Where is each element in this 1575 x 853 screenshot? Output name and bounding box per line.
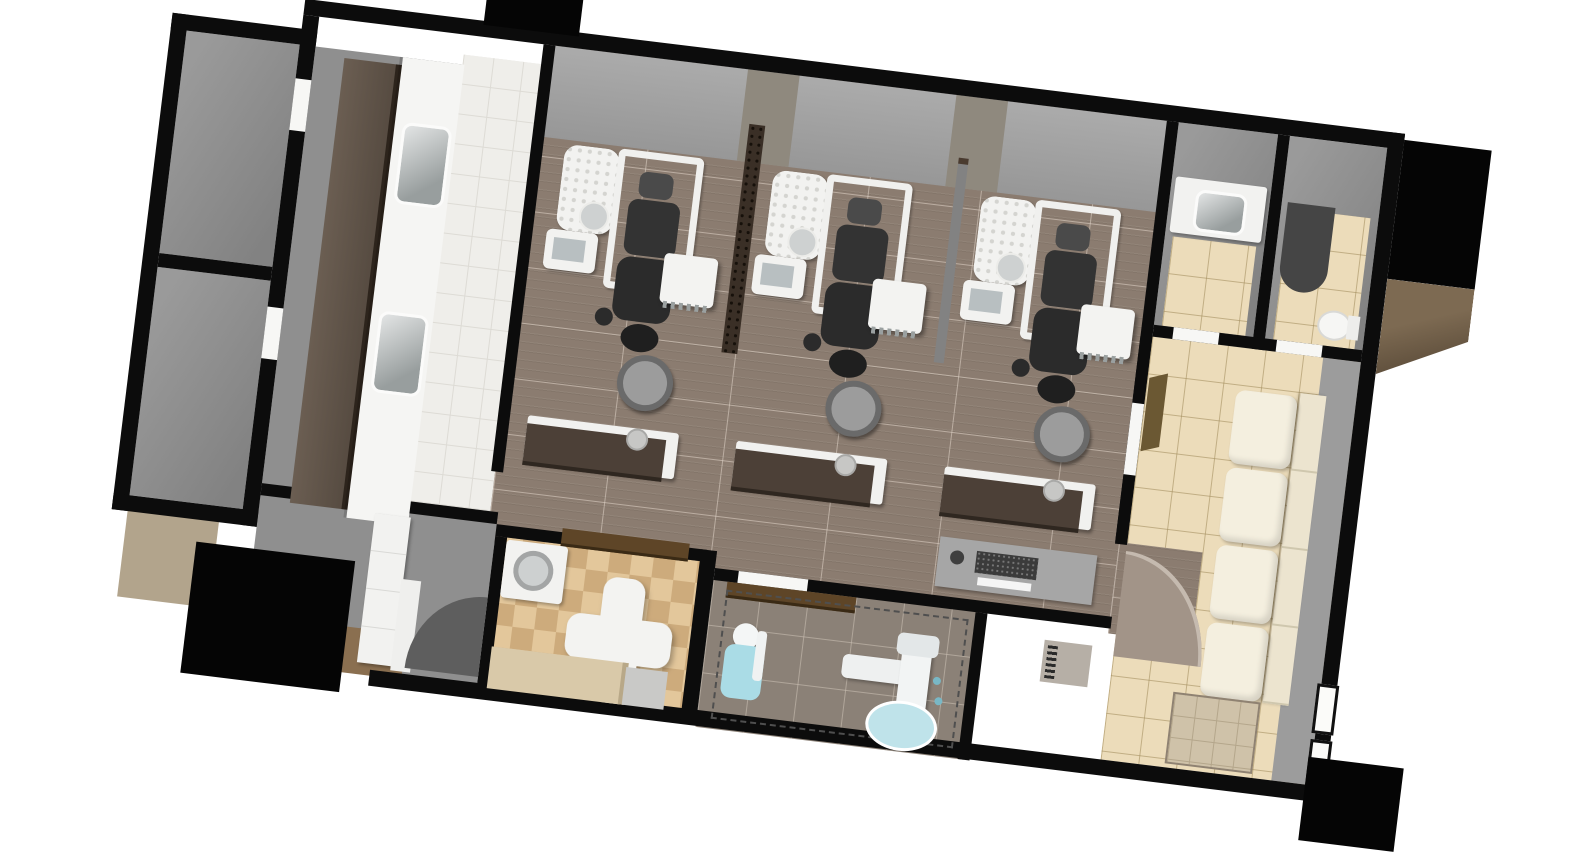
- vanity-sink: [1192, 189, 1249, 237]
- xray-arm: [841, 653, 907, 685]
- cuspidor-bowl: [994, 251, 1027, 284]
- assistant-cart: [659, 253, 719, 309]
- bathroom-vanity: [1169, 176, 1267, 243]
- assistant-cart: [867, 278, 927, 334]
- dental-chair-backrest: [831, 223, 889, 285]
- dental-chair-base: [619, 322, 660, 354]
- entry-doormat: [1167, 694, 1259, 772]
- toilet-tank: [1346, 315, 1361, 340]
- monitor-screen: [760, 263, 794, 289]
- sofa-seat-1: [1228, 389, 1299, 470]
- operatory-2: [736, 162, 941, 432]
- monitor-screen: [551, 237, 585, 263]
- exterior-brown-wedge: [1376, 279, 1475, 385]
- sofa-seat-4: [1199, 622, 1270, 703]
- dental-chair-headrest: [638, 171, 675, 201]
- bathroom1-floor: [1162, 236, 1256, 336]
- exterior-block-bottom-left: [180, 542, 355, 693]
- assistant-cart: [1076, 304, 1136, 360]
- cuspidor-bowl: [786, 226, 819, 259]
- washer-door-ring: [511, 549, 556, 594]
- dental-chair-headrest: [846, 197, 883, 227]
- dental-chair-base: [1036, 373, 1077, 405]
- side-monitor-table: [751, 254, 807, 300]
- sterilizer-washer: [500, 539, 569, 604]
- spittoon: [594, 307, 614, 327]
- spittoon: [802, 332, 822, 352]
- xray-knob-2: [934, 697, 943, 706]
- dental-chair-base: [827, 347, 868, 379]
- dental-chair-backrest: [1040, 249, 1098, 311]
- exterior-block-top-right: [1387, 140, 1491, 290]
- sterilization-sink-2: [370, 310, 430, 397]
- monitor-screen: [968, 288, 1002, 314]
- xray-base: [862, 697, 940, 755]
- side-monitor-table: [959, 279, 1015, 325]
- xray-knob-1: [932, 676, 941, 685]
- floorplan: [70, 0, 1495, 849]
- toilet: [1315, 307, 1363, 346]
- sofa-seat-2: [1218, 467, 1289, 548]
- cuspidor-bowl: [577, 200, 610, 233]
- operatory-1: [528, 137, 733, 407]
- entry-door-panel-1: [1311, 683, 1339, 735]
- xray-patient-chair: [718, 621, 778, 712]
- sofa-seat-3: [1209, 544, 1280, 625]
- xray-machine: [832, 626, 956, 759]
- dental-chair-headrest: [1055, 222, 1092, 252]
- staff-side-table: [622, 667, 668, 710]
- operatory-3: [945, 188, 1150, 458]
- wall-pilaster-2: [945, 95, 1008, 193]
- sterilization-sink-1: [393, 122, 453, 209]
- dental-chair-backrest: [623, 198, 681, 260]
- side-monitor-table: [542, 228, 598, 274]
- exterior-block-bottom-right: [1298, 757, 1404, 852]
- spittoon: [1011, 358, 1031, 378]
